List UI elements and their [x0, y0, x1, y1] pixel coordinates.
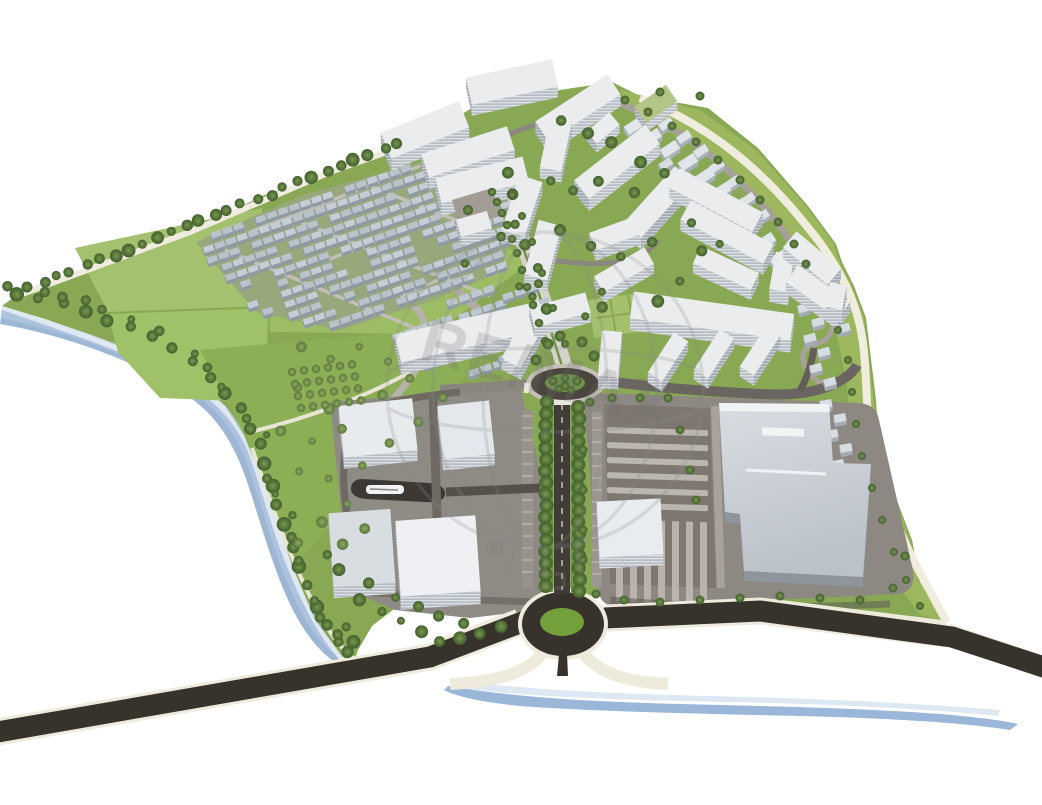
- svg-text:®: ®: [486, 536, 502, 561]
